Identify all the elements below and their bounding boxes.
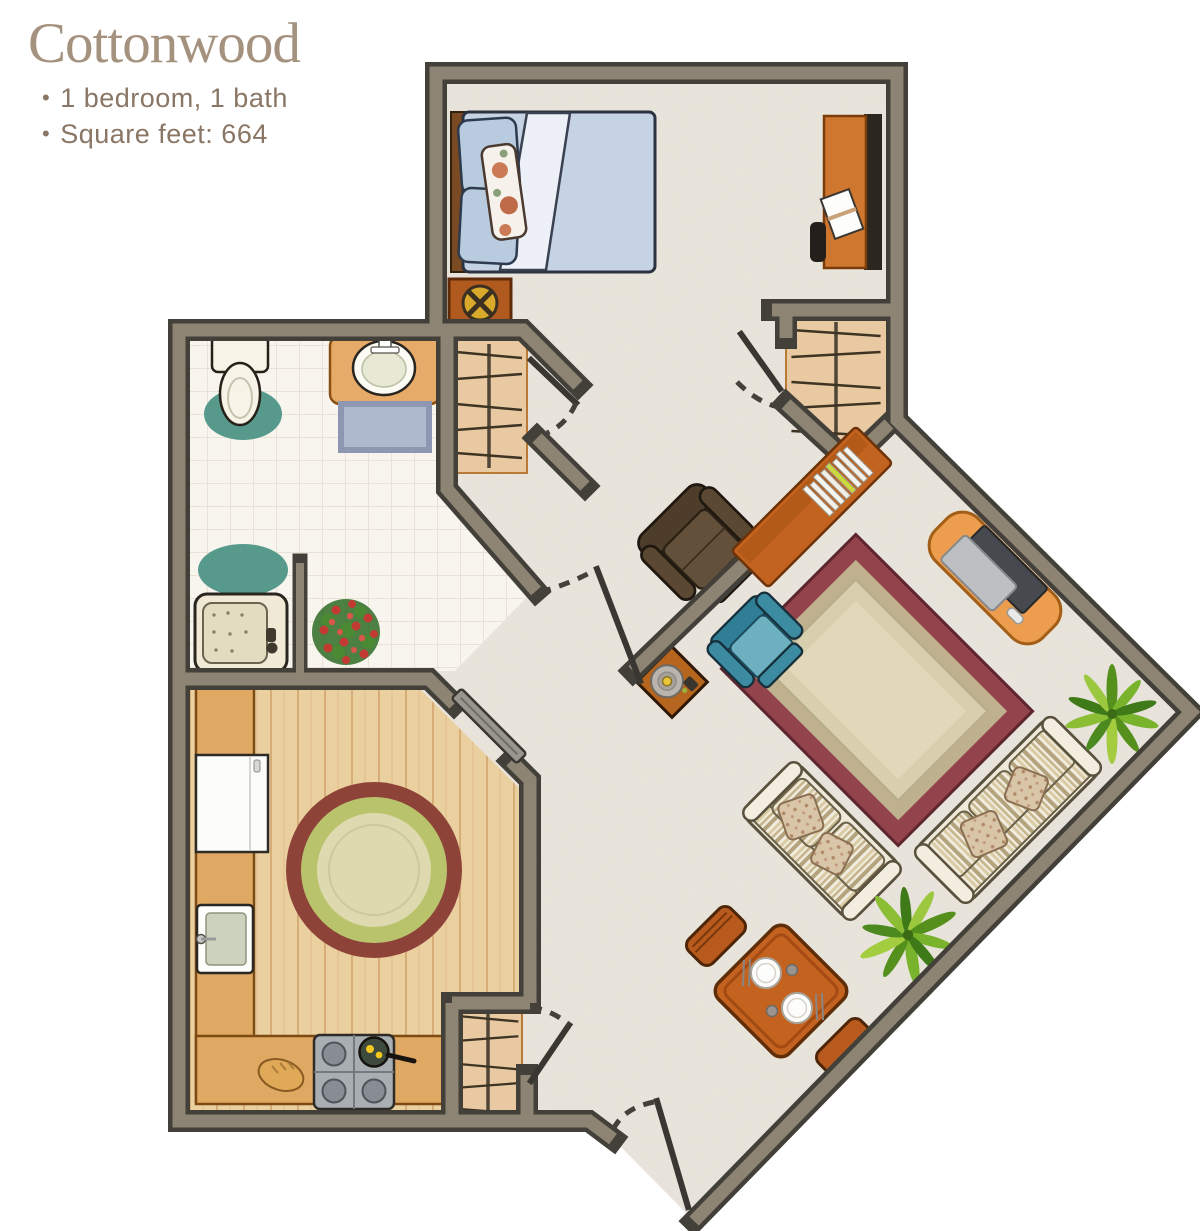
- refrigerator-icon: [196, 755, 268, 852]
- detail-bedrooms: •1 bedroom, 1 bath: [42, 80, 300, 116]
- bath-mat-icon: [341, 404, 429, 450]
- floor-plan: [0, 0, 1200, 1231]
- kitchen-closet: [456, 1008, 522, 1114]
- plan-details: •1 bedroom, 1 bath •Square feet: 664: [42, 80, 300, 152]
- bullet-dot: •: [42, 116, 50, 152]
- bed-icon: [451, 112, 655, 272]
- hall-closet: [451, 340, 527, 473]
- detail-bedrooms-text: 1 bedroom, 1 bath: [60, 83, 288, 113]
- tub-rug: [198, 544, 288, 596]
- kitchen-sink-icon: [197, 905, 254, 973]
- flower-plant-icon: [312, 599, 380, 665]
- vanity-sink-icon: [330, 334, 440, 404]
- walk-in-tub-icon: [195, 594, 287, 672]
- bullet-dot: •: [42, 80, 50, 116]
- detail-sqft-text: Square feet: 664: [60, 119, 268, 149]
- round-rug-icon: [286, 782, 462, 958]
- plan-header: Cottonwood •1 bedroom, 1 bath •Square fe…: [28, 14, 300, 152]
- detail-sqft: •Square feet: 664: [42, 116, 300, 152]
- page-title: Cottonwood: [28, 14, 300, 74]
